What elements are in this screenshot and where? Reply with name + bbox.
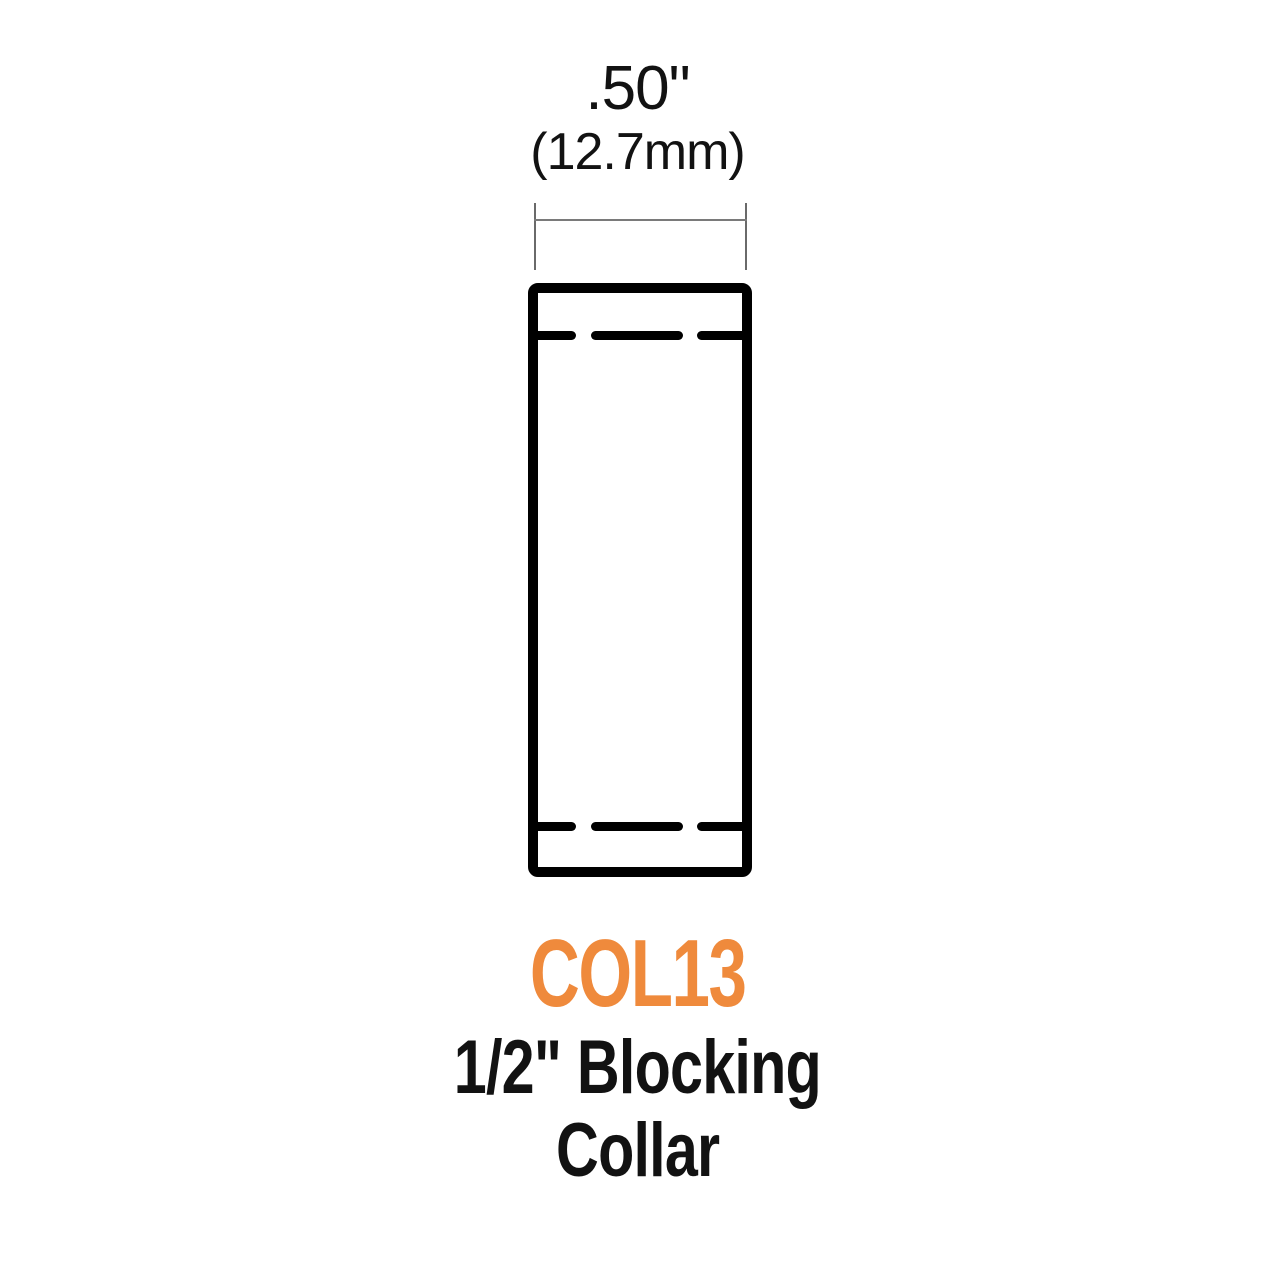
dash-segment [538,822,576,831]
dash-segment [697,331,742,340]
dash-segment [591,331,683,340]
dimension-width-mm: (12.7mm) [0,126,1275,178]
hidden-edge-line-bottom [538,822,742,831]
dash-segment [591,822,683,831]
dash-segment [538,331,576,340]
dimension-width-inches: .50" [0,58,1275,120]
part-number: COL13 [530,926,746,1022]
extension-line-left [534,203,536,270]
hidden-edge-line-top [538,331,742,340]
extension-line-right [745,203,747,270]
part-number-row: COL13 [0,926,1275,1022]
dash-segment [697,822,742,831]
product-diagram: .50" (12.7mm) COL13 1/2" Blocking Collar [0,0,1275,1280]
part-name-row-1: 1/2" Blocking [0,1030,1275,1106]
dimension-line [534,219,747,221]
part-name-line-2: Collar [556,1113,719,1189]
part-name-row-2: Collar [0,1113,1275,1189]
part-name-line-1: 1/2" Blocking [454,1030,821,1106]
collar-outline [528,283,752,877]
